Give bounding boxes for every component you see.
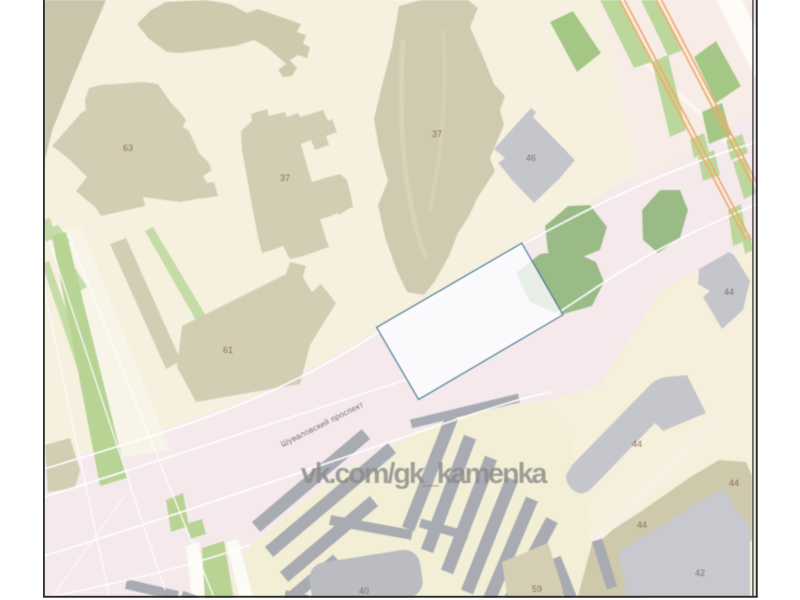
svg-text:42: 42	[695, 568, 705, 578]
svg-text:37: 37	[432, 129, 442, 139]
svg-text:44: 44	[729, 478, 739, 488]
svg-text:40: 40	[359, 586, 369, 596]
svg-text:63: 63	[123, 143, 133, 153]
svg-text:61: 61	[223, 345, 233, 355]
svg-text:44: 44	[637, 520, 647, 530]
svg-text:44: 44	[632, 439, 642, 449]
svg-text:37: 37	[280, 173, 290, 183]
svg-text:46: 46	[526, 153, 536, 163]
svg-text:44: 44	[724, 287, 734, 297]
svg-text:59: 59	[532, 584, 542, 594]
svg-text:vk.com/gk_kamenka: vk.com/gk_kamenka	[301, 458, 549, 490]
